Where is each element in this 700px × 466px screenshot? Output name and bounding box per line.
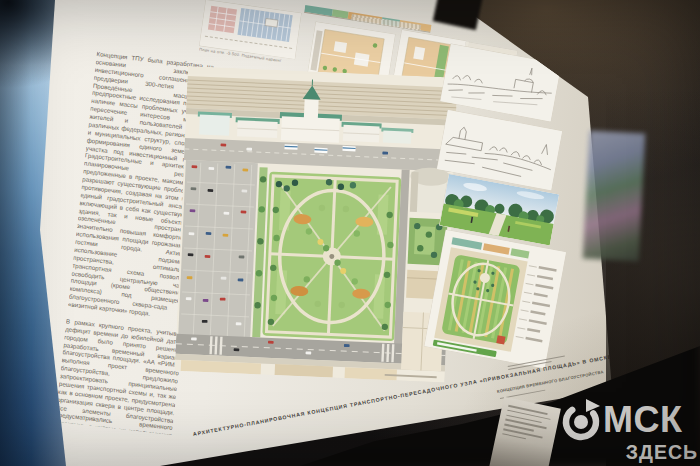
sketch-1-drawing xyxy=(440,44,561,121)
watermark-wordmark: МСК xyxy=(603,399,682,441)
temporary-plan-drawing xyxy=(424,230,565,368)
central-render-illustration xyxy=(175,66,458,382)
intro-paragraph-2: В рамках крупного проекта, учитывая дефи… xyxy=(55,317,184,435)
watermark-subword: ЗДЕСЬ xyxy=(604,441,698,464)
circular-arrow-icon xyxy=(558,399,604,445)
central-park xyxy=(253,171,401,341)
watermark-logo-icon xyxy=(558,399,604,449)
temporary-landscaping-plan xyxy=(424,230,566,372)
parking-lot xyxy=(178,160,258,343)
background-photo-print xyxy=(583,131,646,262)
central-render xyxy=(175,66,458,386)
exhibition-photo: Концепция ТПУ была разработана на основа… xyxy=(0,0,700,466)
floor-plan-basement: План на отм. -5.500. Подземный паркинг xyxy=(199,0,301,65)
